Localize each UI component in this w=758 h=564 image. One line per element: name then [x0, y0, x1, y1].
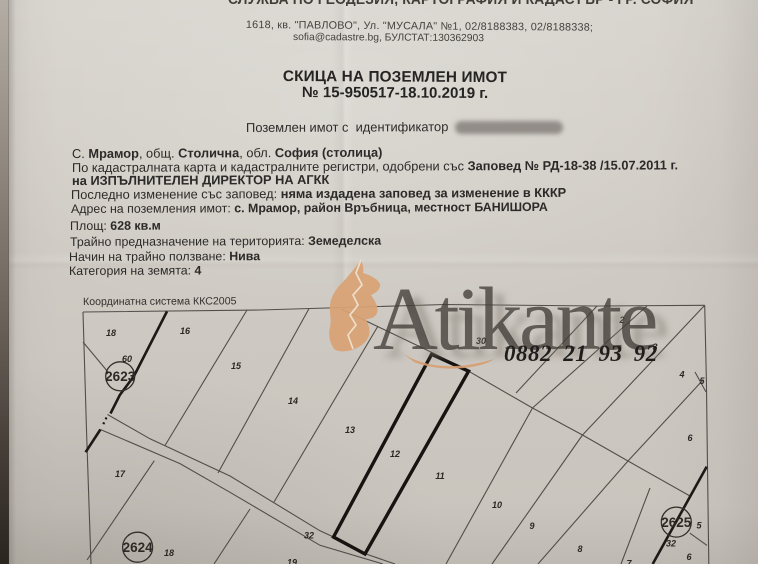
svg-text:8: 8: [577, 544, 582, 554]
svg-text:12: 12: [390, 449, 400, 459]
svg-text:4: 4: [678, 370, 684, 380]
svg-text:14: 14: [288, 396, 298, 406]
svg-text:60: 60: [122, 354, 132, 364]
svg-text:13: 13: [345, 425, 355, 435]
svg-text:2623: 2623: [105, 369, 136, 384]
svg-text:2624: 2624: [123, 540, 154, 555]
svg-text:16: 16: [180, 326, 191, 336]
svg-text:11: 11: [435, 471, 444, 481]
svg-text:9: 9: [529, 521, 534, 531]
svg-text:15: 15: [231, 361, 242, 371]
svg-text:2625: 2625: [661, 515, 692, 530]
svg-text:7: 7: [626, 559, 632, 564]
svg-text:17: 17: [115, 469, 126, 479]
svg-text:18: 18: [106, 328, 116, 338]
svg-text:18: 18: [164, 548, 174, 558]
svg-text:19: 19: [287, 557, 297, 564]
svg-text:32: 32: [666, 539, 676, 549]
svg-text:5: 5: [699, 376, 705, 386]
svg-text:5: 5: [696, 521, 702, 531]
svg-text:6: 6: [687, 433, 693, 443]
svg-text:10: 10: [492, 500, 502, 510]
svg-text:6: 6: [686, 552, 692, 562]
svg-text:32: 32: [304, 530, 314, 540]
